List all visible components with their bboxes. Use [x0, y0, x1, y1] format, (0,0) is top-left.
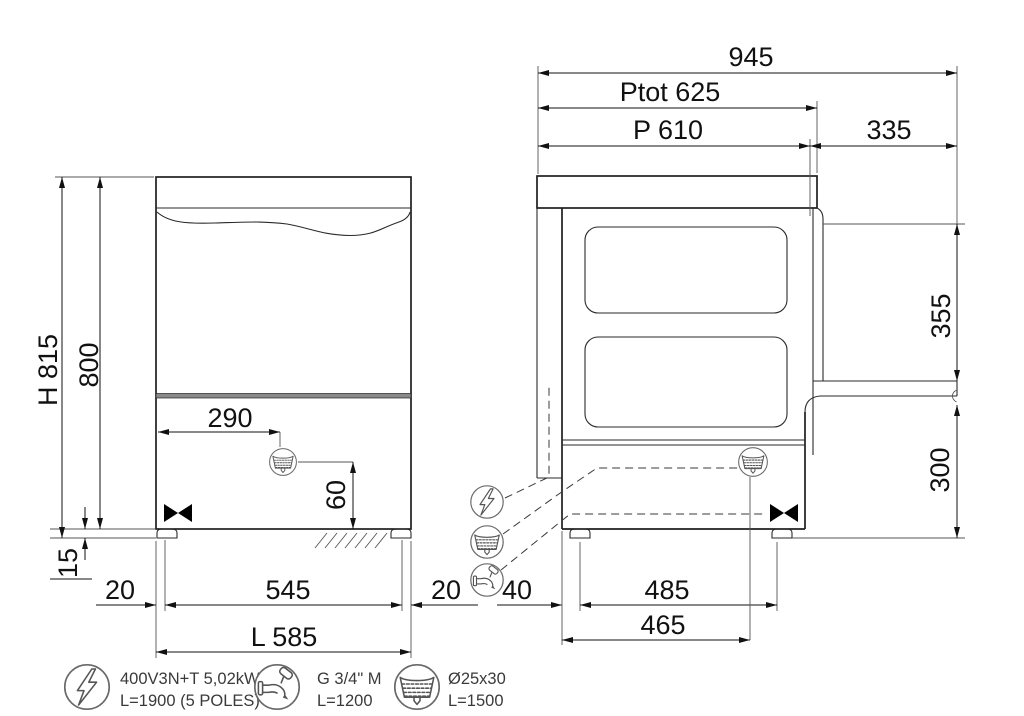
dim-door-floor: 300 [925, 447, 955, 492]
dim-foot-height: 15 [53, 548, 83, 578]
dim-drain-height: 60 [321, 480, 351, 510]
water-routing-line [501, 514, 766, 570]
drain-icon [739, 448, 768, 477]
water-tap-icon [255, 665, 299, 709]
drawing-canvas: H 815 800 15 290 60 20 545 20 L 585 [0, 0, 1024, 716]
drain-icon [395, 665, 439, 709]
dim-back-gap: 40 [502, 575, 532, 605]
lower-basket [585, 337, 787, 427]
water-valve-icon [164, 504, 192, 522]
dim-inset-right: 20 [431, 575, 461, 605]
drain-icon [270, 449, 297, 476]
legend-item-electrical: 400V3N+T 5,02kW L=1900 (5 POLES) [65, 665, 260, 710]
dim-width-total: L 585 [251, 622, 318, 652]
dim-door-depth: 335 [866, 115, 911, 145]
legend-drain-line2: L=1500 [448, 692, 504, 710]
electric-icon [471, 486, 503, 518]
electric-icon [65, 665, 109, 709]
connection-icon-stack [471, 486, 503, 596]
legend-drain-line1: Ø25x30 [448, 670, 506, 688]
dim-inset-left: 20 [105, 575, 135, 605]
electric-routing-line [505, 384, 549, 498]
legend-water-line1: G 3/4" M [317, 670, 382, 688]
front-view [156, 177, 411, 548]
front-left-foot [157, 529, 177, 538]
front-right-foot [391, 529, 411, 538]
dim-drain-x: 290 [207, 403, 252, 433]
water-valve-icon [770, 504, 798, 522]
legend: 400V3N+T 5,02kW L=1900 (5 POLES) G 3/4" … [65, 665, 506, 710]
legend-item-water: G 3/4" M L=1200 [255, 665, 382, 710]
front-door-bottom-band [156, 394, 411, 399]
side-view [501, 176, 957, 570]
upper-basket [585, 227, 787, 313]
dim-height-body: 800 [74, 342, 104, 387]
front-cabinet-outline [156, 177, 411, 529]
legend-electrical-line2: L=1900 (5 POLES) [120, 692, 260, 710]
dim-opening-height: 355 [926, 293, 956, 338]
dim-foot-span-side: 485 [644, 575, 689, 605]
dim-height-total: H 815 [33, 334, 63, 406]
side-right-foot [772, 529, 792, 538]
front-door-handle-curve [157, 212, 410, 236]
side-top-panel [537, 176, 817, 208]
dim-foot-span-front: 545 [265, 575, 310, 605]
floor-hatching [315, 533, 387, 548]
side-left-foot [570, 529, 590, 538]
legend-water-line2: L=1200 [317, 692, 373, 710]
legend-item-drain: Ø25x30 L=1500 [395, 665, 506, 710]
side-view-dimensions: 945 Ptot 625 P 610 335 355 300 40 485 46… [497, 42, 965, 645]
technical-drawing-page: H 815 800 15 290 60 20 545 20 L 585 [0, 0, 1024, 716]
water-tap-icon [471, 564, 503, 596]
legend-electrical-line1: 400V3N+T 5,02kW [120, 670, 260, 688]
drain-icon [471, 526, 503, 558]
dim-drain-pos: 465 [640, 610, 685, 640]
dim-total-depth-open: 945 [728, 42, 773, 72]
dim-depth-body: P 610 [633, 115, 703, 145]
dim-depth-panel: Ptot 625 [620, 77, 721, 107]
